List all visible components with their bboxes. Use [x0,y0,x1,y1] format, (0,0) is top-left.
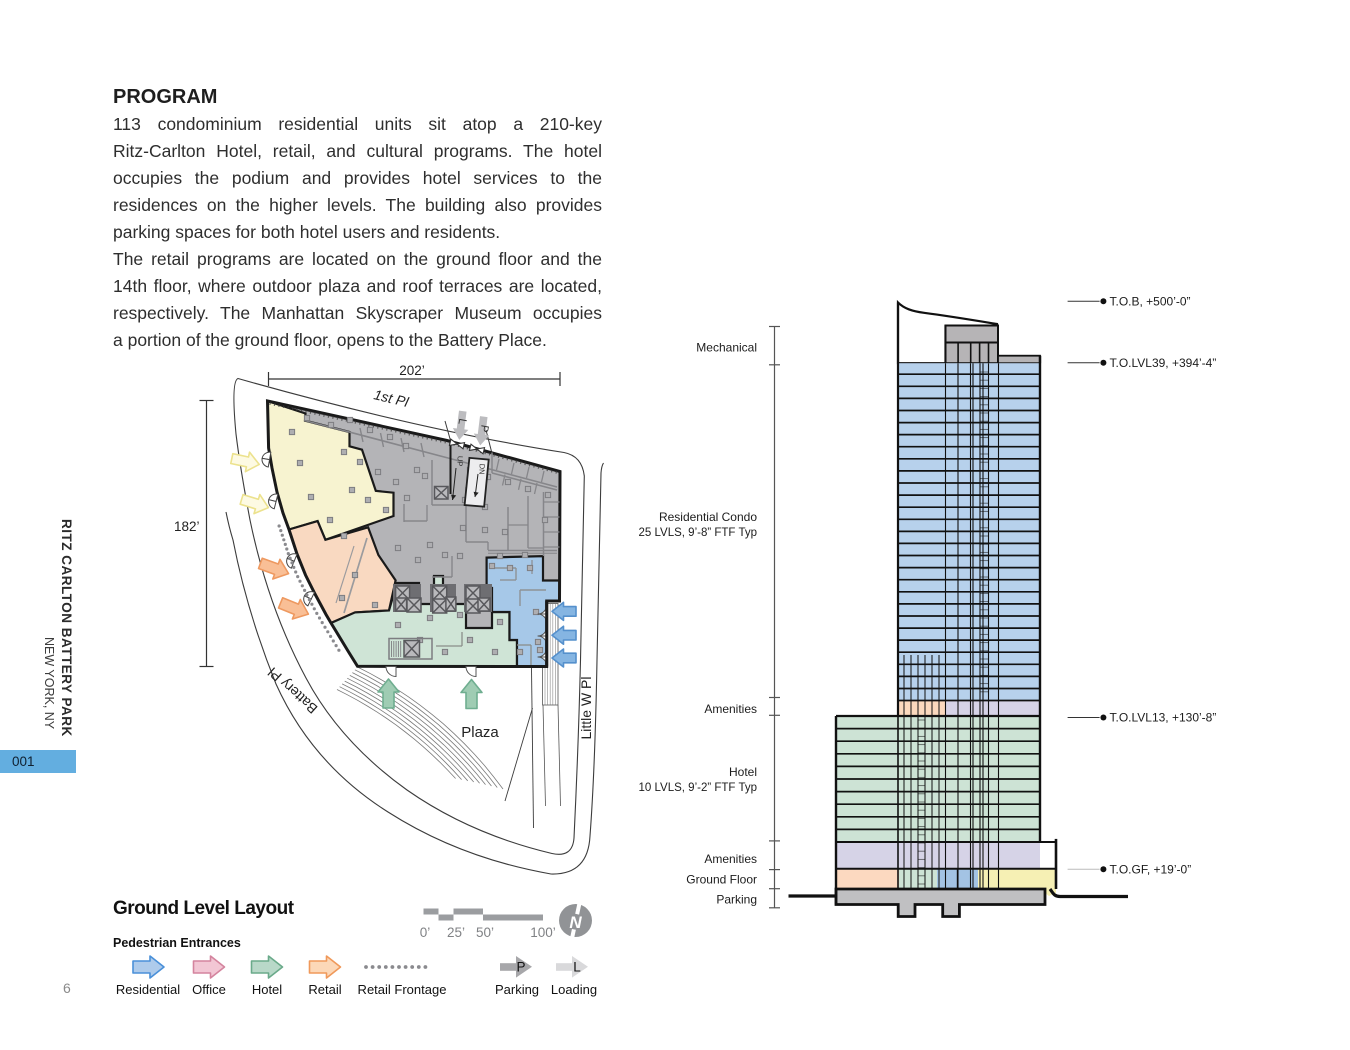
svg-text:L: L [573,960,581,975]
svg-text:25 LVLS, 9’-8” FTF Typ: 25 LVLS, 9’-8” FTF Typ [639,527,757,539]
svg-text:T.O.GF, +19’-0”: T.O.GF, +19’-0” [1110,863,1192,877]
svg-text:Parking: Parking [716,893,757,907]
svg-text:25’: 25’ [447,925,465,940]
svg-text:Little W Pl: Little W Pl [578,676,594,739]
svg-text:182’: 182’ [174,519,200,534]
svg-text:100’: 100’ [530,925,556,940]
svg-text:T.O.LVL39, +394’-4”: T.O.LVL39, +394’-4” [1110,356,1217,370]
svg-text:50’: 50’ [476,925,494,940]
svg-text:Amenities: Amenities [704,852,757,866]
svg-text:1st Pl: 1st Pl [372,386,411,410]
svg-text:10 LVLS, 9’-2” FTF Typ: 10 LVLS, 9’-2” FTF Typ [639,782,757,794]
svg-text:Residential Condo: Residential Condo [659,510,757,524]
svg-text:N: N [569,913,582,932]
svg-text:Mechanical: Mechanical [696,341,757,355]
svg-text:T.O.LVL13, +130’-8”: T.O.LVL13, +130’-8” [1110,711,1217,725]
svg-text:DN: DN [477,463,487,474]
svg-text:Ground Floor: Ground Floor [686,873,757,887]
svg-text:Battery Pl: Battery Pl [265,664,321,717]
svg-text:Plaza: Plaza [461,724,499,741]
svg-text:T.O.B, +500’-0”: T.O.B, +500’-0” [1110,295,1191,309]
svg-text:0’: 0’ [420,925,431,940]
svg-text:Hotel: Hotel [729,765,757,779]
svg-text:Amenities: Amenities [704,702,757,716]
svg-text:202’: 202’ [399,363,425,378]
svg-text:P: P [516,960,525,975]
svg-text:UP: UP [455,456,465,467]
